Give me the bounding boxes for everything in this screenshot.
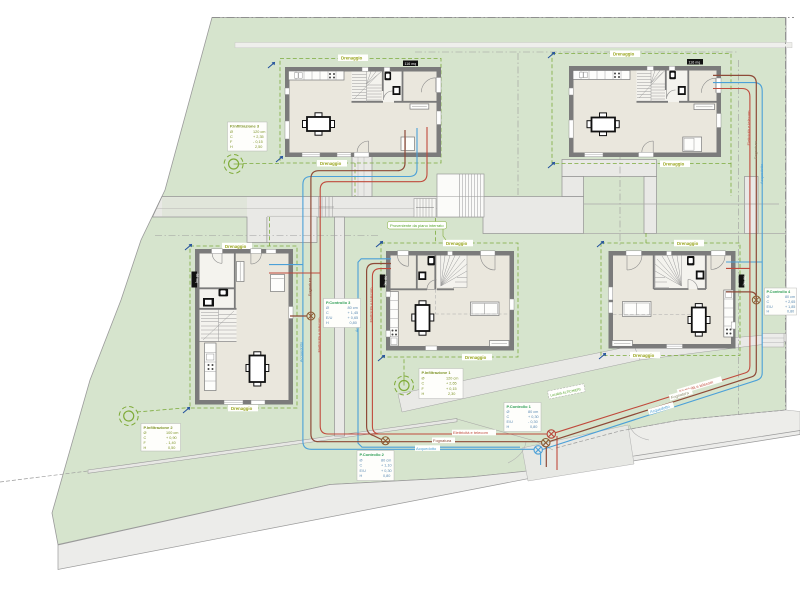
- svg-text:H: H: [144, 446, 147, 450]
- svg-text:H: H: [422, 392, 425, 396]
- svg-text:+ 0,30: + 0,30: [381, 469, 392, 473]
- svg-text:Acquedotto: Acquedotto: [299, 341, 304, 362]
- svg-text:Drenaggio: Drenaggio: [633, 353, 655, 358]
- svg-text:Ø: Ø: [360, 458, 363, 462]
- svg-text:H: H: [230, 145, 233, 149]
- svg-text:0,50: 0,50: [168, 446, 175, 450]
- svg-text:P.Controllo 2: P.Controllo 2: [360, 452, 385, 457]
- svg-text:Elettricità e telecom: Elettricità e telecom: [746, 110, 751, 146]
- svg-text:2,50: 2,50: [255, 145, 262, 149]
- svg-text:+ 2,35: + 2,35: [253, 135, 264, 139]
- svg-text:Acquedotto: Acquedotto: [759, 163, 764, 184]
- svg-text:P.Infiltrazione 3: P.Infiltrazione 3: [230, 124, 260, 129]
- svg-text:P.Infiltrazione 2: P.Infiltrazione 2: [144, 425, 174, 430]
- svg-text:+ 1,45: + 1,45: [348, 311, 359, 315]
- svg-text:- 0,15: - 0,15: [253, 140, 263, 144]
- svg-text:Drenaggio: Drenaggio: [677, 241, 699, 246]
- svg-text:H: H: [507, 425, 510, 429]
- svg-text:C: C: [326, 311, 329, 315]
- svg-text:Ø: Ø: [230, 130, 233, 134]
- svg-text:Drenaggio: Drenaggio: [341, 56, 363, 61]
- svg-text:E/U: E/U: [507, 420, 514, 424]
- svg-text:100 cm: 100 cm: [166, 431, 178, 435]
- svg-text:Fognatura: Fognatura: [307, 277, 312, 296]
- svg-text:0,80: 0,80: [350, 321, 357, 325]
- svg-text:+ 1,85: + 1,85: [785, 305, 795, 309]
- svg-text:P.Controllo 3: P.Controllo 3: [326, 300, 351, 305]
- svg-text:Drenaggio: Drenaggio: [231, 406, 253, 411]
- svg-text:116 mq: 116 mq: [405, 62, 417, 66]
- svg-text:P.Controllo 1: P.Controllo 1: [507, 404, 532, 409]
- svg-text:0,80: 0,80: [530, 425, 537, 429]
- svg-text:Ø: Ø: [422, 377, 425, 381]
- svg-text:98 mq: 98 mq: [383, 276, 387, 286]
- svg-text:Drenaggio: Drenaggio: [446, 241, 468, 246]
- svg-text:E/U: E/U: [326, 316, 333, 320]
- svg-text:C: C: [422, 382, 425, 386]
- svg-text:- 0,30: - 0,30: [528, 420, 538, 424]
- svg-text:C: C: [360, 464, 363, 468]
- svg-text:+ 2,65: + 2,65: [446, 382, 457, 386]
- svg-text:0,80: 0,80: [383, 474, 390, 478]
- svg-text:Drenaggio: Drenaggio: [225, 244, 247, 249]
- svg-text:Elettricità e telecom: Elettricità e telecom: [317, 317, 322, 353]
- svg-text:Drenaggio: Drenaggio: [663, 162, 685, 167]
- svg-text:H: H: [326, 321, 329, 325]
- svg-text:+ 0,90: + 0,90: [166, 436, 177, 440]
- svg-text:- 1,40: - 1,40: [166, 441, 176, 445]
- svg-text:C: C: [144, 436, 147, 440]
- svg-text:Drenaggio: Drenaggio: [465, 355, 487, 360]
- svg-text:C: C: [767, 300, 770, 304]
- svg-text:P.Controllo 4: P.Controllo 4: [767, 289, 792, 294]
- svg-text:Drenaggio: Drenaggio: [613, 52, 635, 57]
- svg-text:+ 1,10: + 1,10: [381, 464, 392, 468]
- svg-text:Elettricità e telecom: Elettricità e telecom: [369, 287, 374, 323]
- svg-text:Elettricità e telecom: Elettricità e telecom: [453, 430, 489, 435]
- svg-text:C: C: [507, 415, 510, 419]
- svg-text:+ 0,65: + 0,65: [348, 316, 359, 320]
- svg-text:H: H: [767, 310, 770, 314]
- svg-text:H: H: [360, 474, 363, 478]
- svg-text:80 cm: 80 cm: [785, 295, 795, 299]
- svg-text:98 mq: 98 mq: [195, 274, 199, 284]
- svg-text:Ø: Ø: [326, 306, 329, 310]
- svg-text:Ø: Ø: [767, 295, 770, 299]
- svg-text:Fognatura: Fognatura: [753, 140, 758, 159]
- svg-text:80 cm: 80 cm: [381, 458, 391, 462]
- svg-text:120 cm: 120 cm: [446, 377, 458, 381]
- svg-text:E/U: E/U: [767, 305, 773, 309]
- svg-text:Drenaggio: Drenaggio: [320, 161, 342, 166]
- svg-text:Proveniente da piano interrato: Proveniente da piano interrato: [390, 223, 444, 228]
- svg-text:Acquedotto: Acquedotto: [416, 446, 437, 451]
- svg-text:2,30: 2,30: [448, 392, 455, 396]
- svg-text:0,80: 0,80: [787, 310, 794, 314]
- svg-text:Ø: Ø: [144, 431, 147, 435]
- svg-text:Ø: Ø: [507, 410, 510, 414]
- svg-text:E/U: E/U: [360, 469, 367, 473]
- svg-text:+ 2,65: + 2,65: [785, 300, 795, 304]
- svg-text:P.Infiltrazione 1: P.Infiltrazione 1: [422, 370, 452, 375]
- svg-text:C: C: [230, 135, 233, 139]
- svg-text:+ 0,30: + 0,30: [528, 415, 539, 419]
- svg-text:120 cm: 120 cm: [253, 130, 265, 134]
- svg-text:98 mq: 98 mq: [742, 276, 746, 286]
- svg-text:116 mq: 116 mq: [689, 60, 701, 64]
- svg-text:+ 0,15: + 0,15: [446, 387, 457, 391]
- svg-text:80 cm: 80 cm: [348, 306, 358, 310]
- svg-text:Fognatura: Fognatura: [433, 438, 452, 443]
- svg-text:80 cm: 80 cm: [528, 410, 538, 414]
